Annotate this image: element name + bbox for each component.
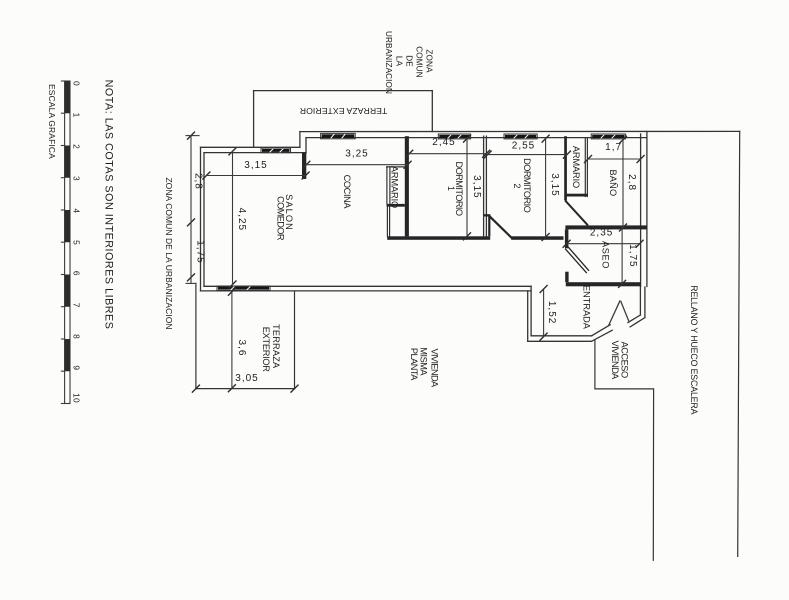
svg-text:VIVIENDA: VIVIENDA xyxy=(610,341,620,381)
svg-text:ASEO: ASEO xyxy=(601,241,611,269)
svg-text:3,6: 3,6 xyxy=(236,340,247,357)
svg-text:ACCESO: ACCESO xyxy=(620,342,630,378)
svg-text:2,35: 2,35 xyxy=(590,227,613,238)
svg-text:1,52: 1,52 xyxy=(546,301,557,324)
svg-text:RELLANO Y HUECO ESCALERA: RELLANO Y HUECO ESCALERA xyxy=(689,285,699,414)
svg-text:8: 8 xyxy=(72,334,82,339)
svg-text:URBANIZACION: URBANIZACION xyxy=(384,31,393,94)
svg-text:1,75: 1,75 xyxy=(627,244,638,267)
svg-text:ZONA COMUN DE LA URBANIZACION: ZONA COMUN DE LA URBANIZACION xyxy=(164,177,174,329)
svg-text:5: 5 xyxy=(72,240,82,245)
svg-text:LA: LA xyxy=(395,56,404,67)
svg-text:2,45: 2,45 xyxy=(432,137,455,148)
svg-text:ESCALA GRAFICA: ESCALA GRAFICA xyxy=(47,84,57,159)
svg-text:3,15: 3,15 xyxy=(244,160,267,171)
svg-text:3,15: 3,15 xyxy=(549,173,560,196)
svg-text:3,15: 3,15 xyxy=(471,175,482,198)
svg-text:COMUN: COMUN xyxy=(415,46,424,77)
svg-text:PLANTA: PLANTA xyxy=(409,348,419,381)
svg-text:ENTRADA: ENTRADA xyxy=(582,285,592,330)
svg-text:3: 3 xyxy=(72,176,82,181)
svg-text:COCINA: COCINA xyxy=(342,175,352,210)
svg-text:1: 1 xyxy=(72,113,82,118)
svg-text:BAÑO: BAÑO xyxy=(608,169,618,196)
svg-text:10: 10 xyxy=(72,393,82,403)
svg-text:DE: DE xyxy=(405,55,414,67)
svg-text:2: 2 xyxy=(512,183,522,188)
svg-text:2,55: 2,55 xyxy=(512,141,535,152)
svg-text:4: 4 xyxy=(72,208,82,213)
svg-text:MISMA: MISMA xyxy=(419,347,429,376)
svg-text:3,05: 3,05 xyxy=(235,373,258,384)
svg-text:4,25: 4,25 xyxy=(236,208,247,231)
svg-text:EXTERIOR: EXTERIOR xyxy=(261,327,271,373)
svg-text:3,25: 3,25 xyxy=(345,148,368,159)
svg-text:TERRAZA EXTERIOR: TERRAZA EXTERIOR xyxy=(300,106,388,116)
svg-text:NOTA: LAS COTAS SON INTERIORES: NOTA: LAS COTAS SON INTERIORES LIBRES xyxy=(103,80,115,330)
svg-text:COMEDOR: COMEDOR xyxy=(276,196,286,241)
svg-text:7: 7 xyxy=(72,303,82,308)
svg-text:DORMITORIO: DORMITORIO xyxy=(522,158,532,212)
svg-text:ZONA: ZONA xyxy=(425,49,434,73)
svg-text:TERRAZA: TERRAZA xyxy=(271,324,281,369)
svg-text:0: 0 xyxy=(72,81,82,86)
svg-text:1: 1 xyxy=(446,186,456,191)
svg-text:ARMARIO: ARMARIO xyxy=(390,166,400,208)
svg-text:9: 9 xyxy=(72,365,82,370)
svg-text:ARMARIO: ARMARIO xyxy=(571,146,581,188)
svg-text:2,8: 2,8 xyxy=(626,174,637,191)
svg-text:2: 2 xyxy=(72,144,82,149)
svg-text:VIVIENDA: VIVIENDA xyxy=(429,348,439,388)
svg-text:1,75: 1,75 xyxy=(195,240,206,263)
svg-text:1,7: 1,7 xyxy=(605,142,622,153)
svg-text:6: 6 xyxy=(72,271,82,276)
svg-text:2,8: 2,8 xyxy=(193,173,204,190)
